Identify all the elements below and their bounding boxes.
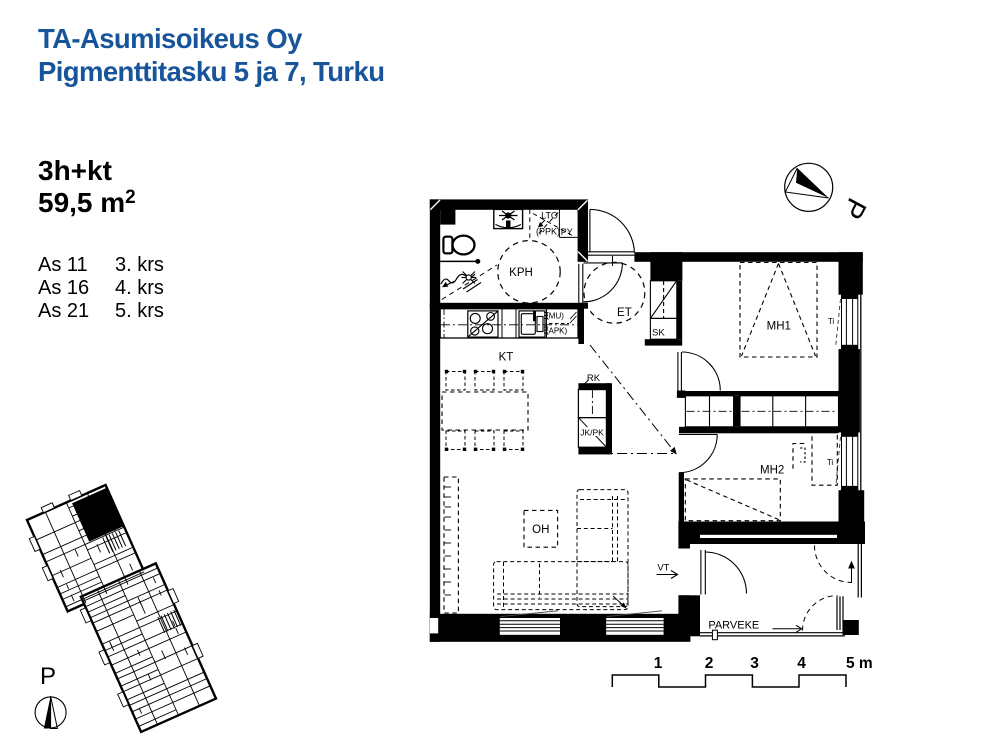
svg-text:P: P [40,663,56,690]
svg-text:MH2: MH2 [760,465,784,477]
svg-text:TA-Asumisoikeus Oy: TA-Asumisoikeus Oy [38,23,303,54]
svg-text:5. krs: 5. krs [115,300,164,322]
svg-text:PY: PY [561,227,573,237]
svg-text:59,5 m2: 59,5 m2 [38,187,136,218]
svg-text:ET: ET [617,307,632,319]
svg-text:MH1: MH1 [767,321,791,333]
svg-text:3. krs: 3. krs [115,254,164,276]
svg-text:3h+kt: 3h+kt [38,155,112,186]
svg-text:(PPK): (PPK) [536,227,560,237]
svg-text:As 16: As 16 [38,277,89,299]
svg-text:1: 1 [654,655,663,672]
svg-text:4: 4 [797,655,806,672]
svg-text:RK: RK [587,373,601,384]
svg-text:JK/PK: JK/PK [580,428,604,438]
svg-text:2: 2 [705,655,714,672]
svg-text:5 m: 5 m [846,655,873,672]
svg-text:3: 3 [750,655,759,672]
svg-text:(MU): (MU) [546,312,564,321]
svg-text:P: P [836,193,872,224]
svg-text:KPH: KPH [509,267,533,279]
svg-text:SK: SK [652,328,665,339]
svg-text:4. krs: 4. krs [115,277,164,299]
svg-text:(APK): (APK) [546,327,568,336]
svg-text:As 21: As 21 [38,300,89,322]
svg-text:Ti: Ti [828,317,835,326]
svg-text:Ti: Ti [827,458,834,467]
svg-text:KT: KT [499,352,514,364]
svg-text:PARVEKE: PARVEKE [708,620,759,632]
svg-text:Pigmenttitasku 5 ja 7, Turku: Pigmenttitasku 5 ja 7, Turku [38,56,384,87]
svg-text:As 11: As 11 [38,254,88,276]
svg-text:VT: VT [657,563,669,574]
svg-text:OH: OH [532,524,549,536]
